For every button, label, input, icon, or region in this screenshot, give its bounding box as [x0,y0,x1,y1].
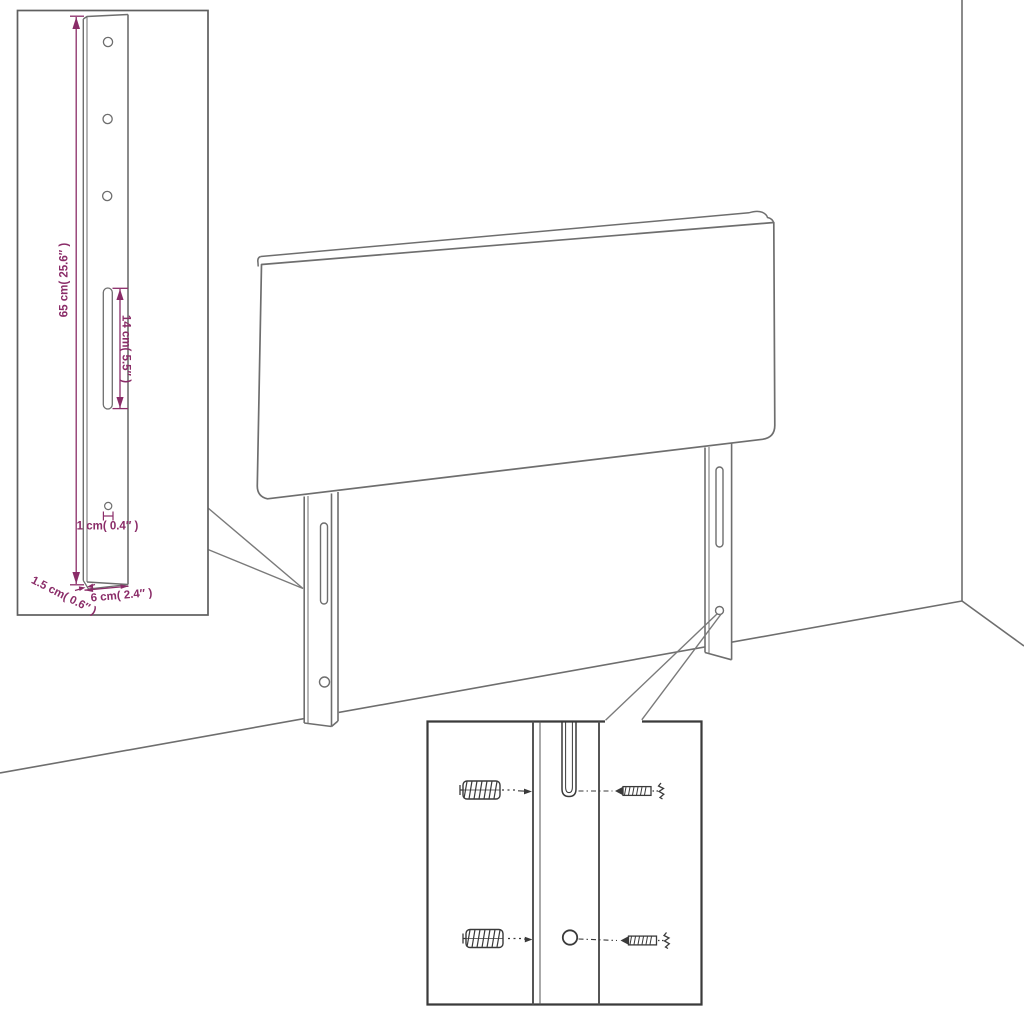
inset-background [428,722,702,1005]
dimension-label-slot: 14 cm( 5.5″ ) [120,315,132,383]
dimension-label-height: 65 cm( 25.6″ ) [59,243,71,318]
callout-line [208,550,303,589]
right-mounting-leg [705,444,732,661]
left-leg-slot [321,523,328,604]
callout-lines-leg-detail [208,508,303,589]
rim-left-cap [258,257,261,267]
assembly-diagram: 65 cm( 25.6″ ) 14 cm( 5.5″ ) 1 cm( 0.4″ … [0,0,1024,1024]
left-leg-screw-hole [320,677,330,687]
floor-edge-right [962,601,1024,646]
callout-line [606,614,718,721]
headboard [257,211,775,498]
headboard-panel [257,223,775,499]
callout-line [208,508,303,589]
leg-detail-inset: 65 cm( 25.6″ ) 14 cm( 5.5″ ) 1 cm( 0.4″ … [18,11,209,618]
rim-right-cap [749,211,774,223]
callout-line [642,615,721,720]
left-mounting-leg [304,491,339,727]
mounting-detail-inset [428,722,702,1005]
dimension-label-hole: 1 cm( 0.4″ ) [77,521,139,533]
callout-lines-mounting-detail [606,614,721,721]
right-leg-slot [716,467,723,547]
diagram-canvas: 65 cm( 25.6″ ) 14 cm( 5.5″ ) 1 cm( 0.4″ … [0,0,1024,1024]
